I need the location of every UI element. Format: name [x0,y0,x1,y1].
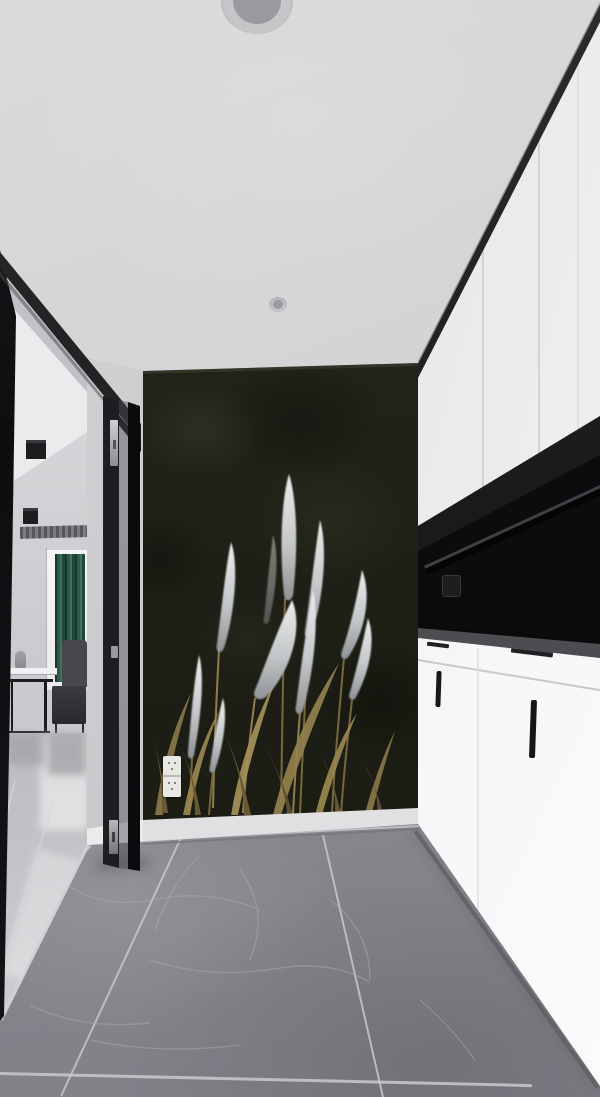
cube-ceiling-light [23,508,38,524]
pampas-plume [254,600,296,699]
vein [330,900,370,980]
door-lock-plate [110,420,118,466]
cabinet-handle [435,671,441,707]
vein [240,870,258,960]
armchair [62,640,87,687]
outlet-pin [171,768,173,770]
vein [60,880,260,910]
table-reflection [6,733,46,765]
cabinet-handle [427,642,449,649]
pampas-plume [282,474,297,600]
leaf [231,681,275,815]
drawer-seam [418,659,600,691]
outlet-pin [174,782,176,784]
wall-outlet [163,756,181,797]
small-spotlight-inner [273,300,283,309]
vein [90,1040,240,1049]
outlet-divider [163,775,181,777]
furniture-reflection [48,733,86,775]
vein [155,855,200,930]
vein [150,960,370,982]
cabinet-door-seam [538,80,540,510]
vein [420,1000,475,1060]
cube-ceiling-light [26,440,46,459]
door-lock-plate [109,820,118,854]
pampas-plume [296,590,316,714]
pampas-plume [217,542,236,652]
ac-vent [20,525,87,539]
metal-table-leg [44,681,47,733]
leaf [365,731,395,813]
pampas-plume [188,655,202,759]
pampas-plume [264,535,277,624]
outlet-pin [168,762,170,764]
niche-outlet [442,575,461,597]
cabinet-door-seam [477,648,479,916]
lock-slot [112,832,115,842]
sideboard-surface [6,668,57,674]
pampas-grass-mural [143,363,418,823]
metal-table-leg [11,681,13,733]
vase [15,651,26,668]
outlet-pin [171,788,173,790]
stem [341,700,352,815]
pampas-plume [210,698,225,773]
vein [30,1005,150,1025]
outlet-pin [174,762,176,764]
outlet-pin [168,782,170,784]
door-hinge [111,646,118,658]
ottoman [52,686,86,724]
lock-slot [113,440,116,449]
cabinet-door-seam [577,20,579,470]
cabinet-handle [529,700,537,758]
interior-photo [0,0,600,1097]
